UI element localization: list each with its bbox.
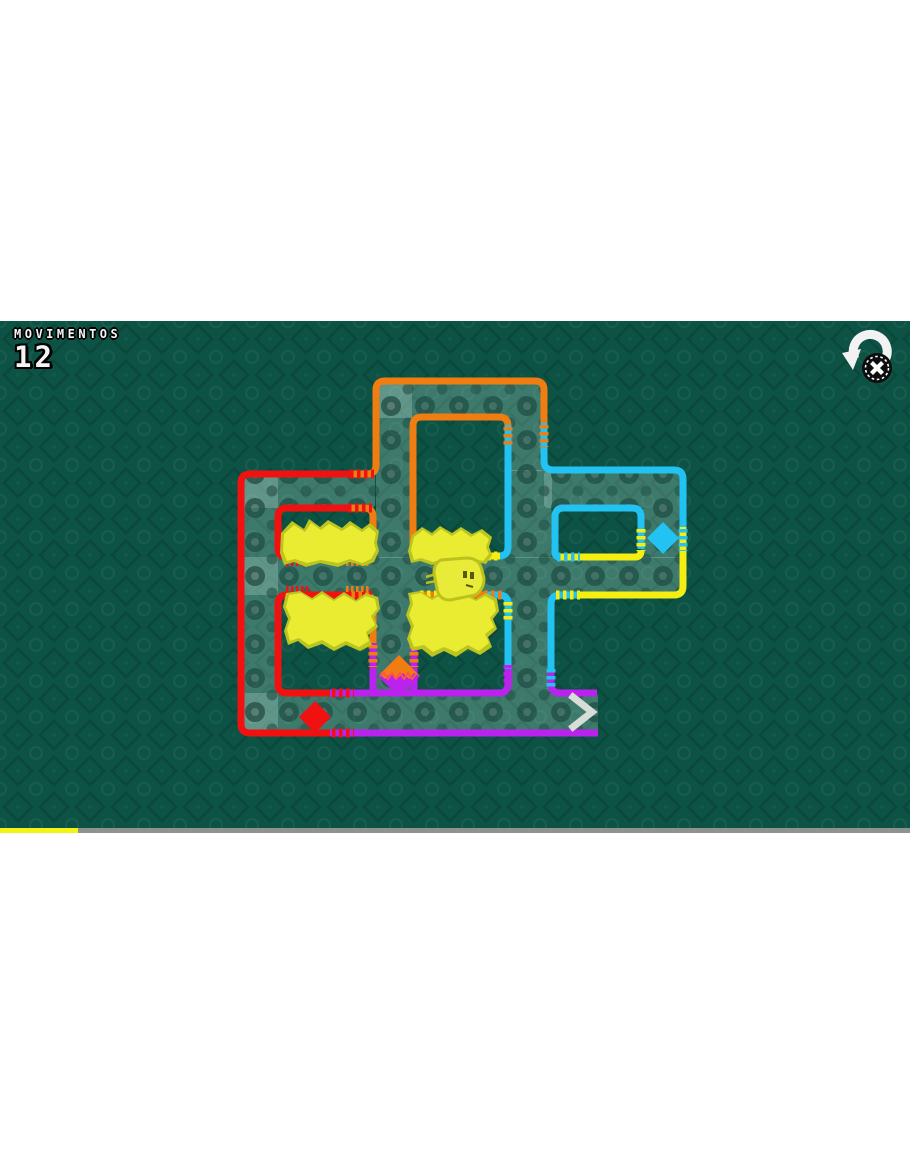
letterbox-bottom — [0, 833, 910, 1155]
screen: MOVIMENTOS 12 — [0, 0, 910, 1155]
maze-svg — [0, 321, 910, 833]
moves-label: MOVIMENTOS — [14, 327, 121, 341]
game-area: MOVIMENTOS 12 — [0, 321, 910, 833]
moves-count: 12 — [14, 343, 121, 372]
letterbox-top — [0, 0, 910, 321]
hud-moves: MOVIMENTOS 12 — [14, 327, 121, 372]
x-button-icon — [862, 353, 892, 383]
restart-button[interactable] — [834, 321, 906, 393]
